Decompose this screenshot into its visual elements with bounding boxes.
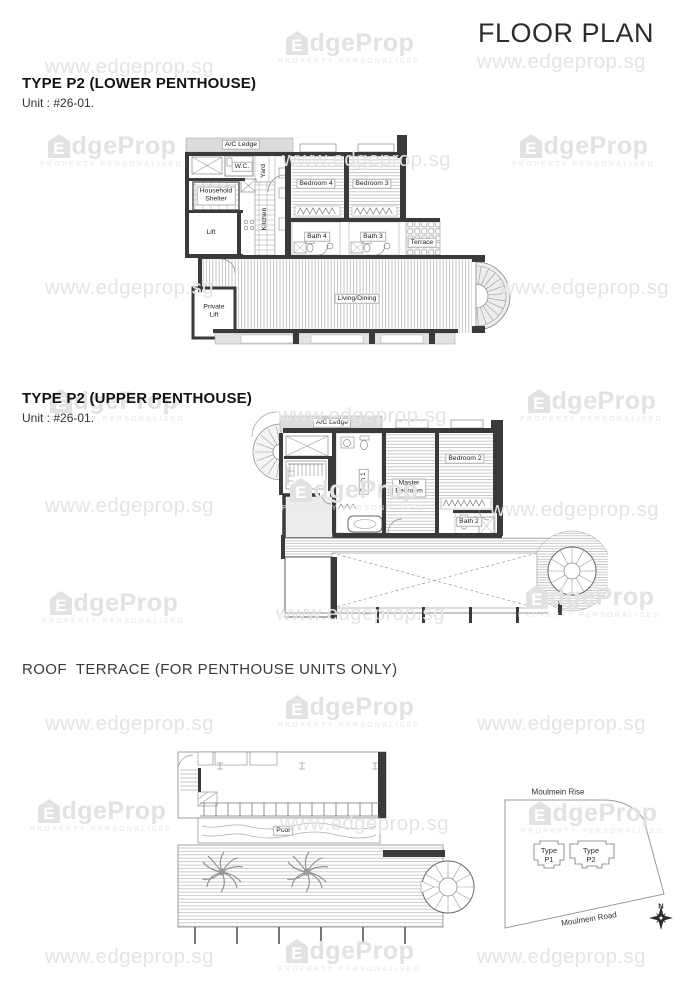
room-label-bedroom4: Bedroom 4 [296, 179, 335, 189]
house-icon: E [289, 477, 313, 503]
svg-text:E: E [531, 590, 543, 609]
svg-text:E: E [534, 806, 546, 825]
room-label-bath4: Bath 4 [304, 232, 330, 242]
house-icon: E [285, 30, 309, 56]
edgeprop-logo-watermark: EdgeProp PROPERTY PERSONALISED [40, 133, 183, 168]
edgeprop-logo-watermark: EdgeProp PROPERTY PERSONALISED [278, 938, 421, 973]
site-label-type-p2: Type P2 [583, 846, 599, 864]
watermark-url: www.edgeprop.sg [45, 712, 214, 736]
house-icon: E [527, 388, 551, 414]
watermark-url: www.edgeprop.sg [500, 276, 669, 300]
edgeprop-logo-watermark: EdgeProp PROPERTY PERSONALISED [278, 694, 421, 729]
svg-text:E: E [291, 700, 303, 719]
site-label-moulmein-rise: Moulmein Rise [532, 788, 585, 797]
page-title: FLOOR PLAN [478, 18, 654, 49]
svg-text:E: E [53, 139, 65, 158]
floor-plan-page: FLOOR PLAN TYPE P2 (LOWER PENTHOUSE) Uni… [0, 0, 700, 989]
edgeprop-logo-watermark: EdgeProp PROPERTY PERSONALISED [278, 30, 421, 65]
edgeprop-logo-watermark: EdgeProp PROPERTY PERSONALISED [518, 584, 661, 619]
edgeprop-logo-watermark: EdgeProp PROPERTY PERSONALISED [30, 798, 173, 833]
room-label-yard: Yard [260, 162, 268, 180]
edgeprop-logo-watermark: EdgeProp PROPERTY PERSONALISED [42, 590, 185, 625]
unit-number-lower: Unit : #26-01. [22, 96, 94, 110]
room-label-kitchen: Kitchen [261, 206, 269, 233]
room-label-lift: Lift [204, 229, 217, 237]
roof-deck [178, 845, 474, 944]
svg-text:E: E [55, 596, 67, 615]
room-label-wc: W.C. [232, 162, 253, 172]
watermark-url: www.edgeprop.sg [282, 148, 451, 172]
room-label-private-lift: Private Lift [201, 304, 226, 321]
svg-text:E: E [291, 36, 303, 55]
svg-text:E: E [291, 944, 303, 963]
svg-text:E: E [533, 394, 545, 413]
roof-open-area [178, 752, 386, 818]
room-label-terrace: Terrace [408, 238, 437, 248]
heading-upper-penthouse: TYPE P2 (UPPER PENTHOUSE) [22, 390, 252, 407]
heading-roof-terrace: ROOF TERRACE (FOR PENTHOUSE UNITS ONLY) [22, 661, 397, 678]
svg-text:E: E [295, 483, 307, 502]
room-label-household-shelter: Household Shelter [197, 187, 236, 206]
watermark-url: www.edgeprop.sg [278, 404, 447, 428]
edgeprop-logo-watermark: EdgeProp PROPERTY PERSONALISED [282, 477, 425, 512]
watermark-url: www.edgeprop.sg [45, 494, 214, 518]
house-icon: E [37, 798, 61, 824]
room-label-living-dining: Living/Dining [335, 294, 380, 304]
watermark-url: www.edgeprop.sg [477, 945, 646, 969]
heading-lower-penthouse: TYPE P2 (LOWER PENTHOUSE) [22, 75, 256, 92]
site-label-north: N [658, 902, 663, 911]
room-label-bedroom2: Bedroom 2 [445, 454, 484, 464]
watermark-url: www.edgeprop.sg [490, 498, 659, 522]
edgeprop-logo-watermark: EdgeProp PROPERTY PERSONALISED [520, 388, 663, 423]
house-icon: E [525, 584, 549, 610]
spiral-stair-top-left [252, 412, 281, 480]
house-icon: E [285, 938, 309, 964]
watermark-url: www.edgeprop.sg [477, 712, 646, 736]
watermark-url: www.edgeprop.sg [477, 50, 646, 74]
site-label-type-p1: Type P1 [541, 846, 557, 864]
house-icon: E [519, 133, 543, 159]
watermark-url: www.edgeprop.sg [280, 812, 449, 836]
unit-number-upper: Unit : #26-01. [22, 411, 94, 425]
edgeprop-logo-watermark: EdgeProp PROPERTY PERSONALISED [512, 133, 655, 168]
room-label-ac-ledge: A/C Ledge [222, 140, 260, 150]
watermark-url: www.edgeprop.sg [276, 602, 445, 626]
room-label-bedroom3: Bedroom 3 [352, 179, 391, 189]
edgeprop-logo-watermark: EdgeProp PROPERTY PERSONALISED [521, 800, 664, 835]
house-icon: E [528, 800, 552, 826]
room-label-bath2: Bath 2 [456, 517, 482, 527]
house-icon: E [285, 694, 309, 720]
roof-terrace-plan [172, 745, 502, 957]
svg-text:E: E [525, 139, 537, 158]
room-label-bath3: Bath 3 [360, 232, 386, 242]
watermark-url: www.edgeprop.sg [45, 276, 214, 300]
watermark-url: www.edgeprop.sg [45, 945, 214, 969]
house-icon: E [49, 590, 73, 616]
house-icon: E [47, 133, 71, 159]
svg-text:E: E [43, 804, 55, 823]
